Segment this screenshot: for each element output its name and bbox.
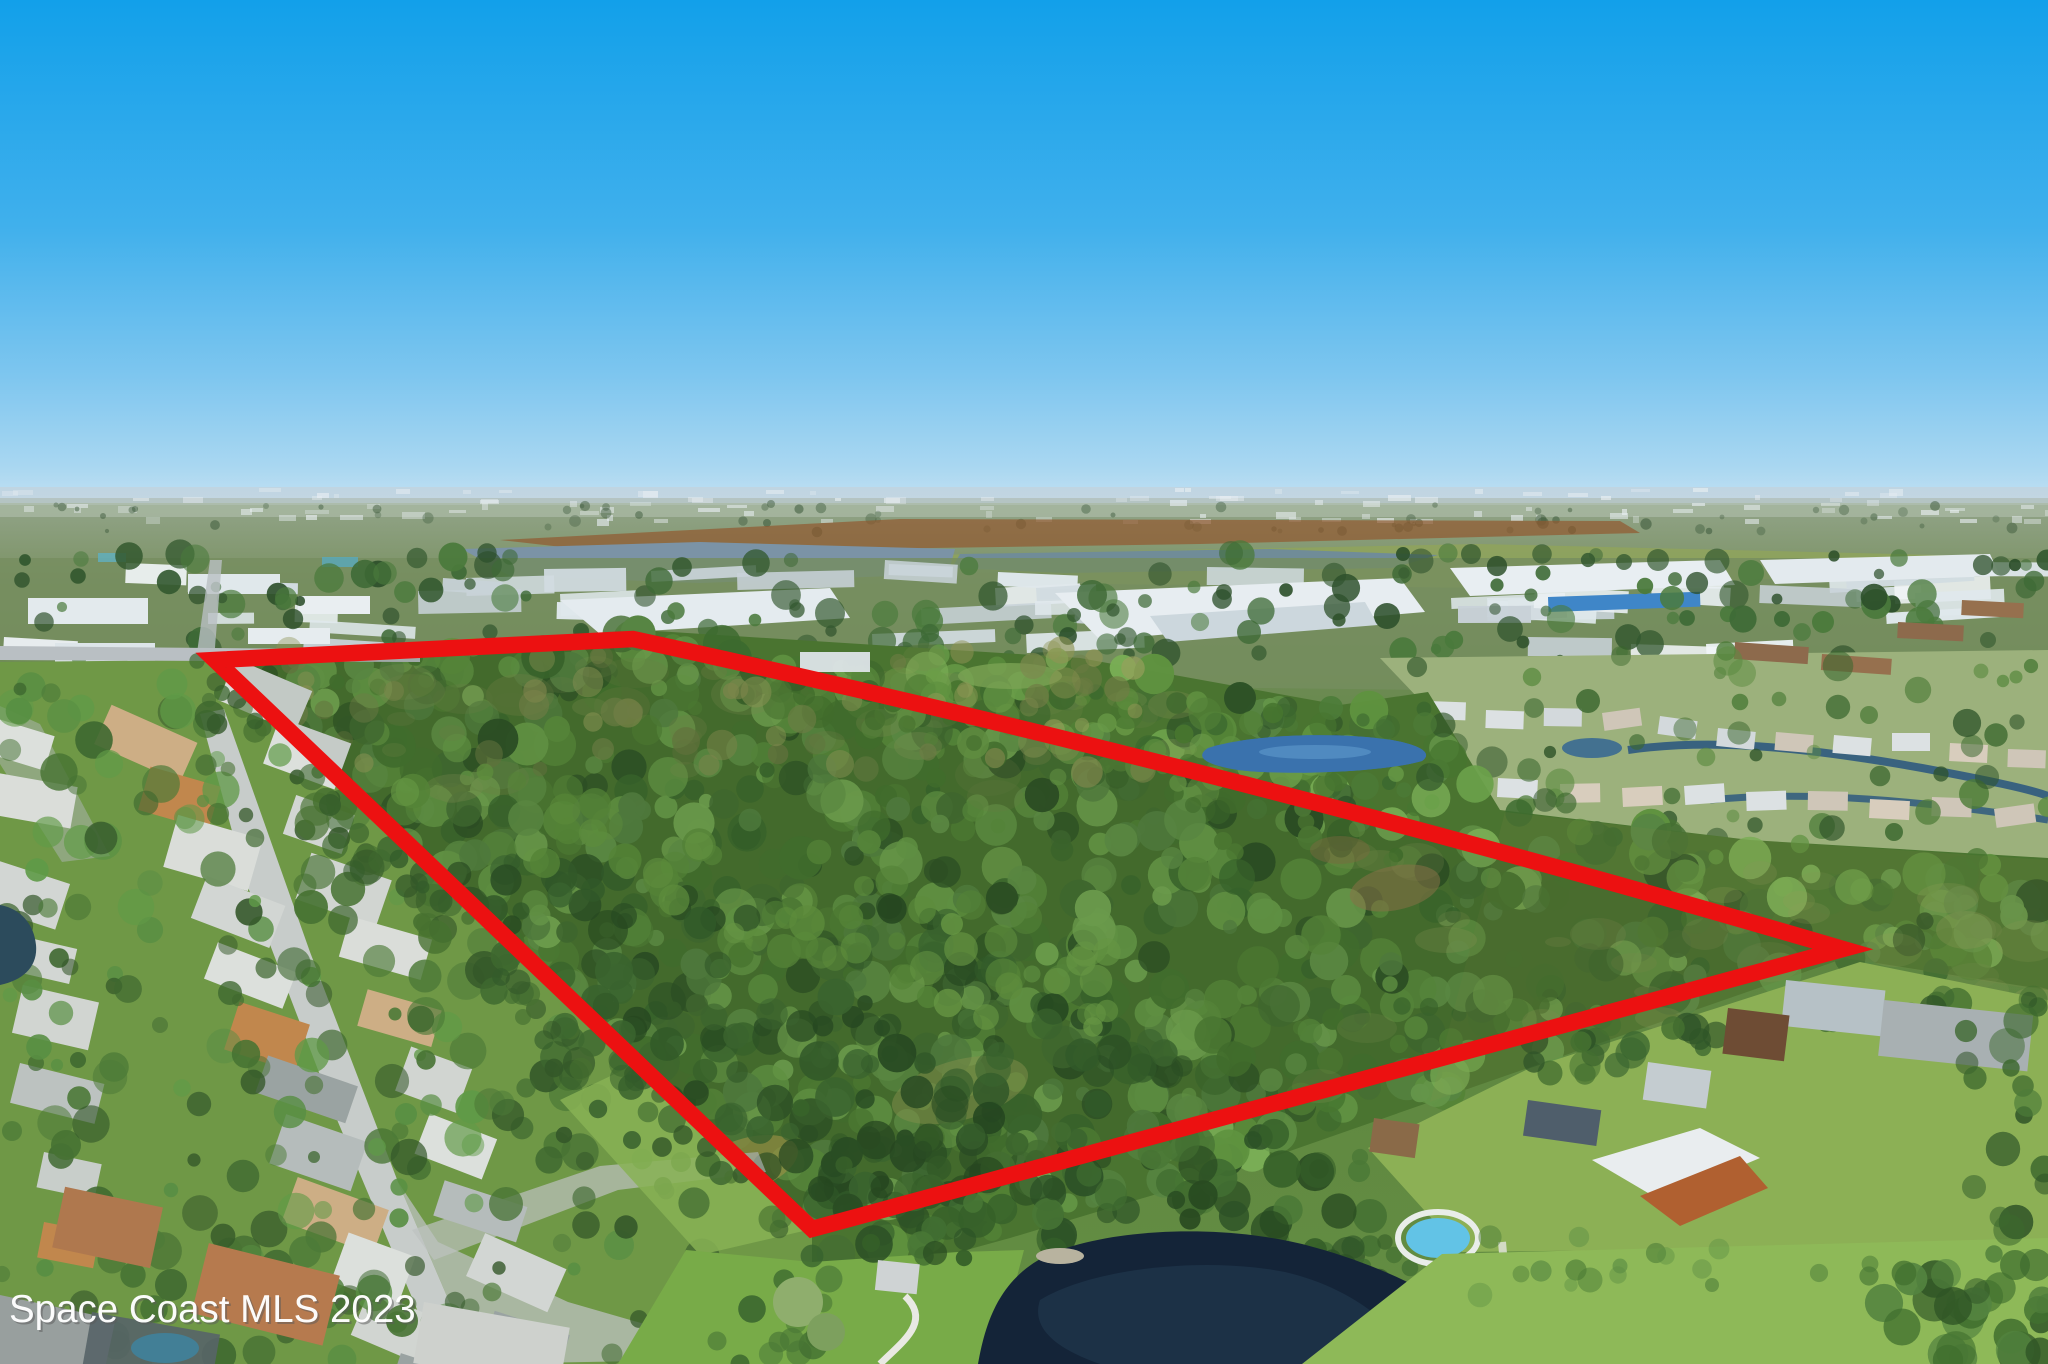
svg-text:Space Coast MLS 2023: Space Coast MLS 2023 xyxy=(9,1288,416,1331)
